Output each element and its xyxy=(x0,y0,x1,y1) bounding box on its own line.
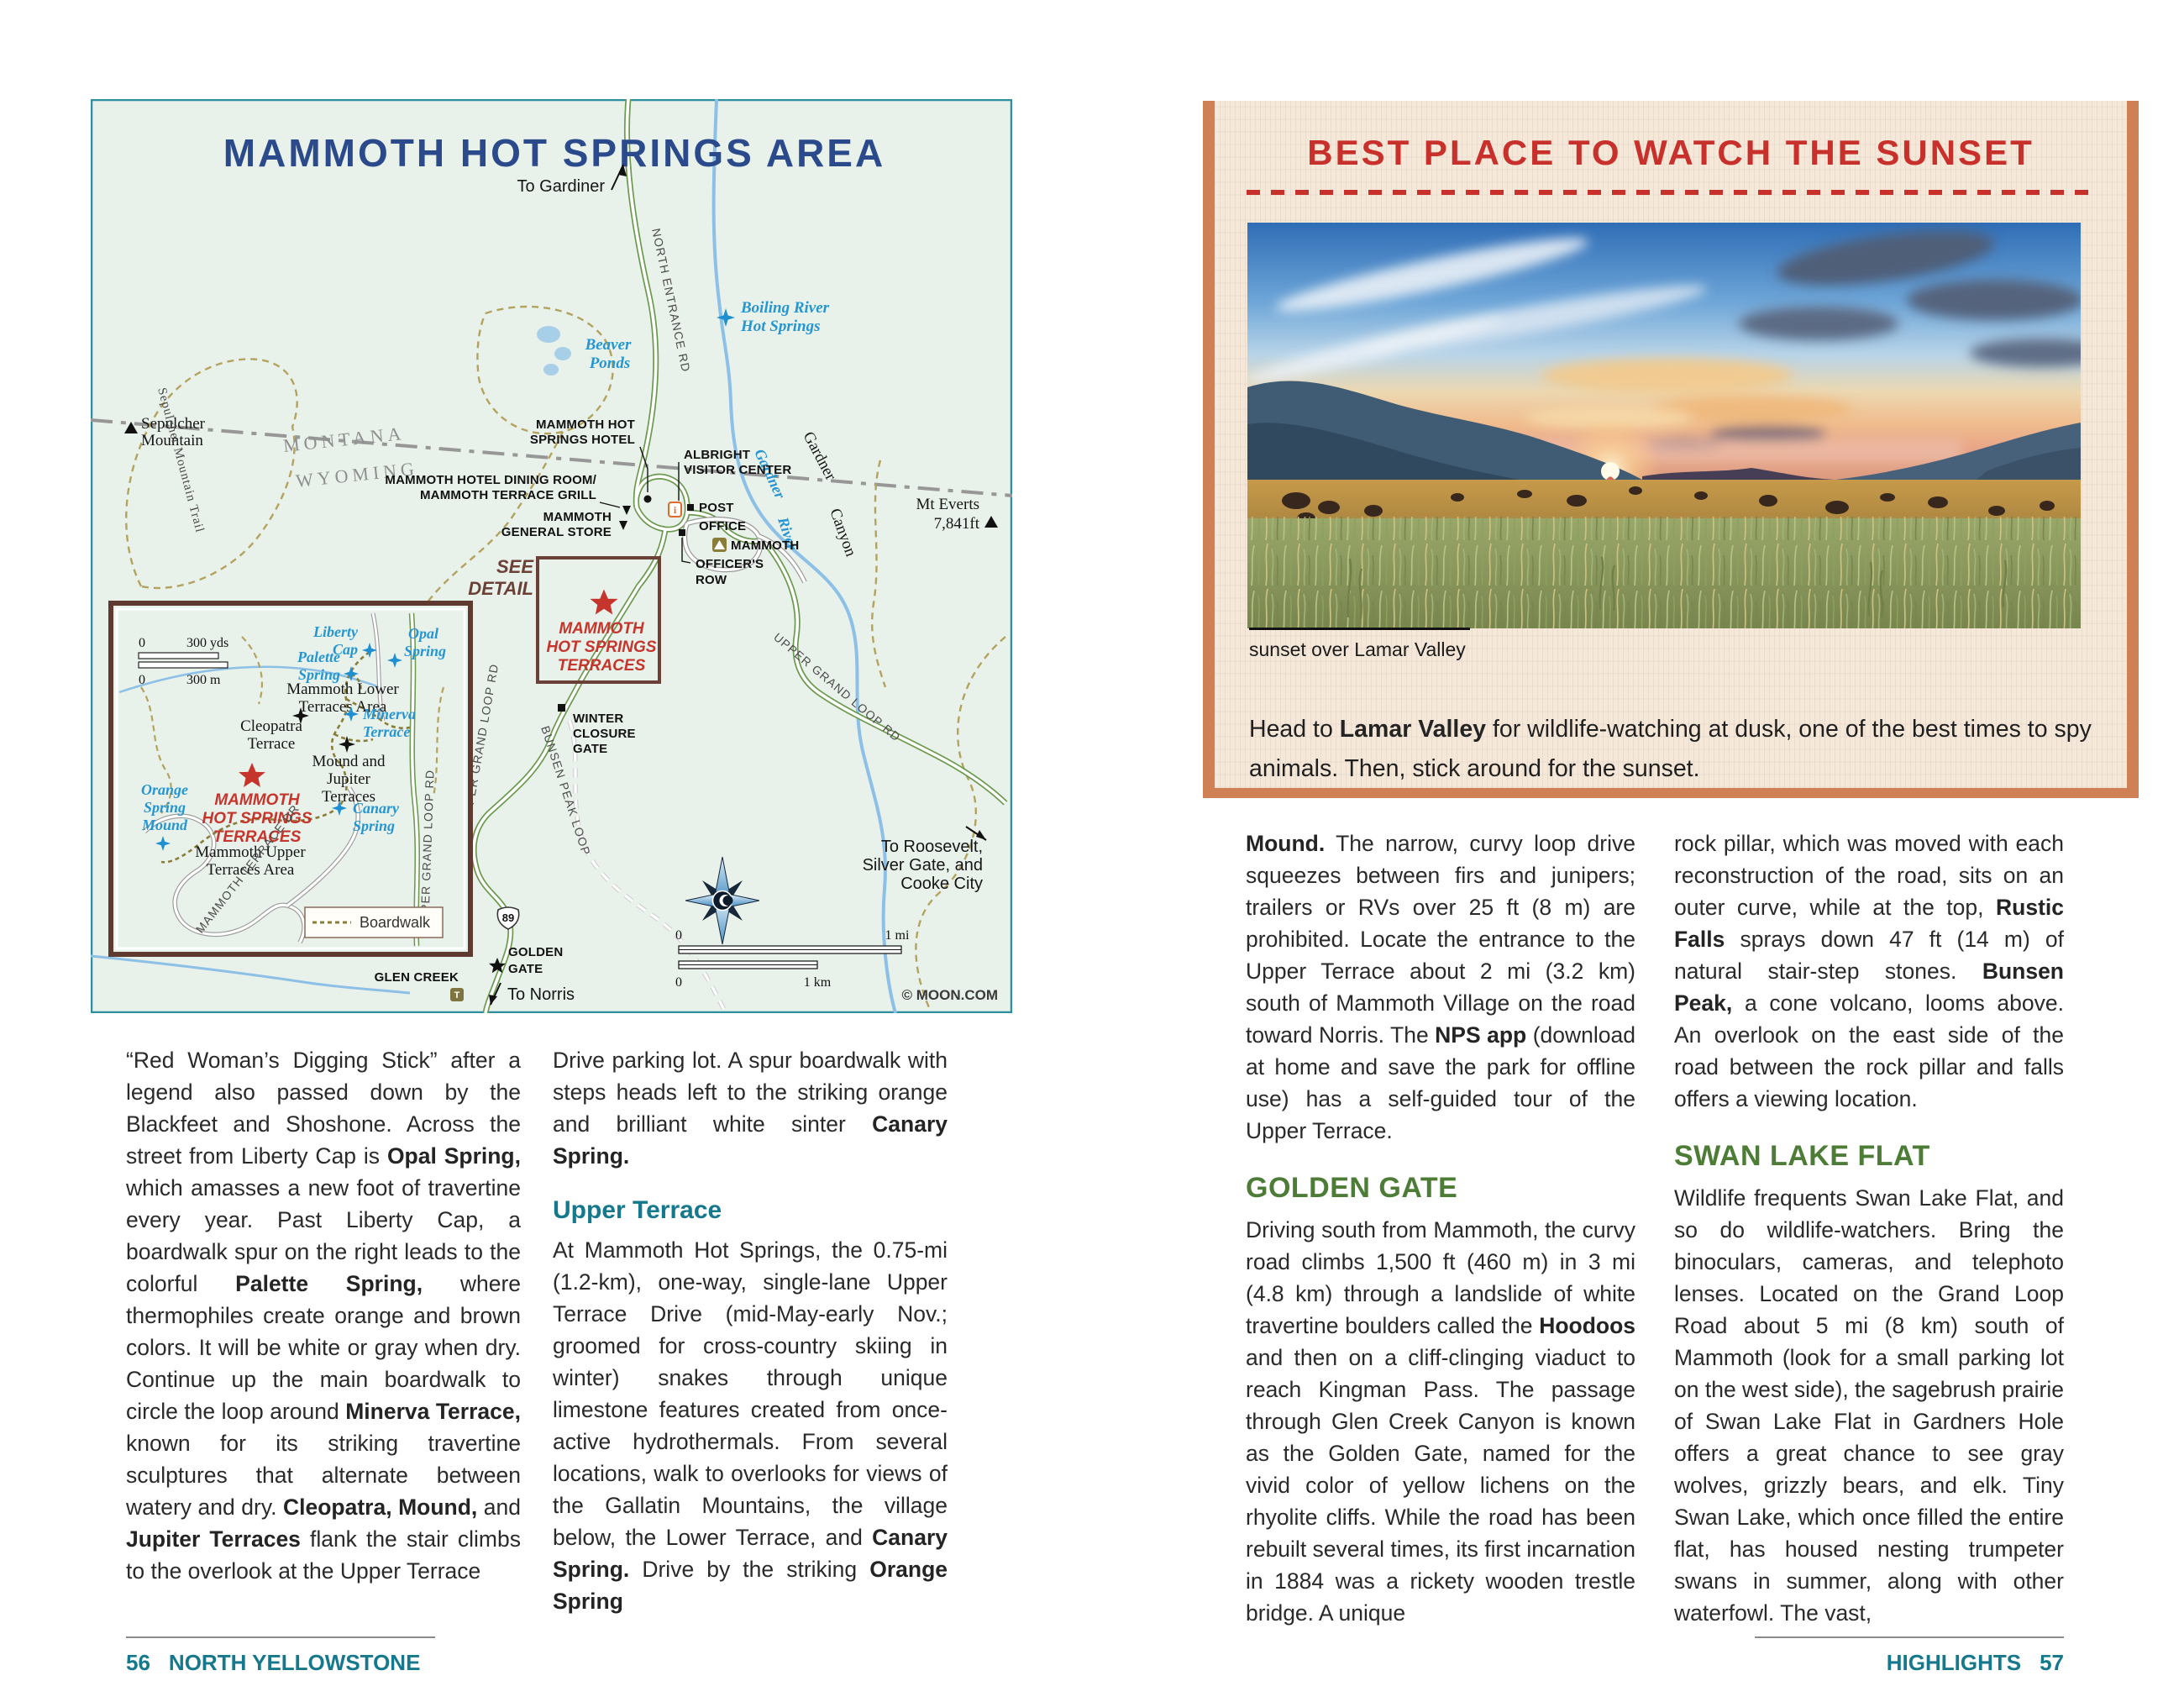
map-label-to-gardiner: To Gardiner xyxy=(517,177,606,196)
svg-text:300 yds: 300 yds xyxy=(186,636,228,650)
map-label-officers-row: OFFICER'S xyxy=(696,557,764,571)
map-label-general-store-2: GENERAL STORE xyxy=(501,525,612,539)
map-mammoth-hot-springs-area: MAMMOTH HOT SPRINGS AREA To Gardiner NOR… xyxy=(91,99,1012,1013)
map-label-to-roosevelt: To Roosevelt, xyxy=(881,838,983,856)
map-label-to-roosevelt-2: Silver Gate, and xyxy=(863,856,983,875)
map-label-to-norris: To Norris xyxy=(507,985,575,1004)
map-label-boiling-river: Boiling River xyxy=(740,299,830,317)
svg-text:Boardwalk: Boardwalk xyxy=(360,914,431,931)
dashed-rule xyxy=(1247,190,2095,195)
svg-text:0: 0 xyxy=(139,636,145,650)
left-column-1: “Red Woman’s Digging Stick” after a lege… xyxy=(126,1044,521,1587)
feature-lede: Head to Lamar Valley for wildlife-watchi… xyxy=(1249,710,2102,789)
map-label-see-detail-2: DETAIL xyxy=(468,578,533,599)
svg-text:0: 0 xyxy=(675,928,682,943)
map-inset: 0 300 yds 0 300 m Liberty Cap Opal Sprin… xyxy=(111,603,470,954)
section-label: NORTH YELLOWSTONE xyxy=(169,1650,421,1676)
map-label-post-office-2: OFFICE xyxy=(699,519,746,533)
map-label-boiling-river-2: Hot Springs xyxy=(740,318,821,335)
svg-text:Orange: Orange xyxy=(141,781,188,798)
map-title: MAMMOTH HOT SPRINGS AREA xyxy=(223,131,885,175)
svg-text:1 km: 1 km xyxy=(804,975,832,990)
map-label-golden-gate: GOLDEN xyxy=(508,945,563,959)
paragraph: Wildlife frequents Swan Lake Flat, and s… xyxy=(1674,1182,2064,1629)
officers-row-square xyxy=(679,529,685,536)
map-label-beaver-ponds: Beaver xyxy=(585,336,632,354)
map-label-winter-gate: WINTER xyxy=(573,712,623,726)
svg-text:Canary: Canary xyxy=(353,800,400,817)
map-label-dining: MAMMOTH HOTEL DINING ROOM/ xyxy=(385,473,596,487)
right-column-2: rock pillar, which was moved with each r… xyxy=(1674,827,2064,1629)
svg-text:Mound: Mound xyxy=(141,817,188,833)
svg-text:Spring: Spring xyxy=(404,643,446,659)
svg-text:Terrace: Terrace xyxy=(248,735,296,753)
map-label-mt-everts-elev: 7,841ft xyxy=(934,515,980,533)
map-label-mt-everts: Mt Everts xyxy=(916,496,979,513)
map-label-hotel: MAMMOTH HOT xyxy=(536,418,635,432)
right-column-1: Mound. The narrow, curvy loop drive sque… xyxy=(1246,827,1635,1629)
page-number: 57 xyxy=(2040,1650,2064,1676)
map-label-beaver-ponds-2: Ponds xyxy=(589,355,631,372)
paragraph: Mound. The narrow, curvy loop drive sque… xyxy=(1246,827,1635,1147)
svg-text:Liberty: Liberty xyxy=(312,623,359,640)
footer-left: 56 NORTH YELLOWSTONE xyxy=(126,1636,435,1676)
heading-swan-lake-flat: SWAN LAKE FLAT xyxy=(1674,1140,2064,1172)
svg-text:Minerva: Minerva xyxy=(362,706,416,722)
map-label-officers-row-2: ROW xyxy=(696,573,727,587)
heading-upper-terrace: Upper Terrace xyxy=(553,1195,948,1226)
map-label-see-detail: SEE xyxy=(496,556,534,577)
post-office-square xyxy=(687,504,694,511)
left-column-2: Drive parking lot. A spur boardwalk with… xyxy=(553,1044,948,1617)
map-label-general-store: MAMMOTH xyxy=(543,510,612,524)
svg-text:300 m: 300 m xyxy=(186,673,221,687)
map-label-dining-2: MAMMOTH TERRACE GRILL xyxy=(420,488,596,502)
paragraph: At Mammoth Hot Springs, the 0.75-mi (1.2… xyxy=(553,1234,948,1617)
trailhead-t: T xyxy=(454,990,460,1001)
map-label-terraces-main-3: TERRACES xyxy=(558,657,646,675)
photo-caption: sunset over Lamar Valley xyxy=(1249,638,1466,661)
page-number: 56 xyxy=(126,1650,150,1676)
svg-text:89: 89 xyxy=(502,911,514,924)
svg-text:Jupiter: Jupiter xyxy=(327,770,370,788)
map-label-hotel-2: SPRINGS HOTEL xyxy=(530,433,635,447)
footer-right: HIGHLIGHTS 57 xyxy=(1755,1636,2064,1676)
guidebook-spread: MAMMOTH HOT SPRINGS AREA To Gardiner NOR… xyxy=(0,0,2184,1702)
map-label-post-office: POST xyxy=(699,501,734,515)
paragraph: Drive parking lot. A spur boardwalk with… xyxy=(553,1044,948,1172)
footer-rule xyxy=(1755,1636,2064,1638)
svg-text:0: 0 xyxy=(675,975,682,990)
svg-text:Spring: Spring xyxy=(353,817,395,834)
heading-golden-gate: GOLDEN GATE xyxy=(1246,1172,1635,1204)
footer-rule xyxy=(126,1636,435,1638)
map-svg: MAMMOTH HOT SPRINGS AREA To Gardiner NOR… xyxy=(91,99,1012,1013)
map-label-golden-gate-2: GATE xyxy=(508,962,543,976)
svg-text:0: 0 xyxy=(139,673,145,687)
map-label-to-roosevelt-3: Cooke City xyxy=(900,875,983,893)
map-label-albright-2: VISITOR CENTER xyxy=(684,463,791,477)
svg-text:Palette: Palette xyxy=(297,649,340,665)
caption-rule xyxy=(1249,628,1470,630)
photo-svg xyxy=(1247,223,2081,628)
map-label-glen-creek: GLEN CREEK xyxy=(375,970,459,985)
map-label-albright: ALBRIGHT xyxy=(684,448,750,462)
feature-title: BEST PLACE TO WATCH THE SUNSET xyxy=(1215,133,2127,173)
hotel-dot xyxy=(644,496,652,503)
svg-text:Spring: Spring xyxy=(144,799,186,816)
winter-gate-square xyxy=(558,704,565,712)
map-label-winter-gate-3: GATE xyxy=(573,742,607,756)
map-label-terraces-main: MAMMOTH xyxy=(559,620,645,638)
paragraph: Driving south from Mammoth, the curvy ro… xyxy=(1246,1214,1635,1629)
svg-text:Cleopatra: Cleopatra xyxy=(240,717,302,735)
section-label: HIGHLIGHTS xyxy=(1887,1650,2021,1676)
photo-lamar-valley-sunset xyxy=(1247,223,2081,628)
svg-text:Mound and: Mound and xyxy=(312,753,386,770)
paragraph: “Red Woman’s Digging Stick” after a lege… xyxy=(126,1044,521,1587)
map-label-terraces-main-2: HOT SPRINGS xyxy=(547,638,657,656)
svg-text:Opal: Opal xyxy=(408,625,438,642)
svg-text:Mammoth Lower: Mammoth Lower xyxy=(286,680,399,698)
svg-text:1 mi: 1 mi xyxy=(885,928,910,943)
map-label-winter-gate-2: CLOSURE xyxy=(573,727,636,741)
paragraph: rock pillar, which was moved with each r… xyxy=(1674,827,2064,1115)
map-label-campground: MAMMOTH xyxy=(731,538,799,553)
svg-text:Terrace: Terrace xyxy=(363,723,410,740)
map-credit: © MOON.COM xyxy=(901,987,998,1003)
